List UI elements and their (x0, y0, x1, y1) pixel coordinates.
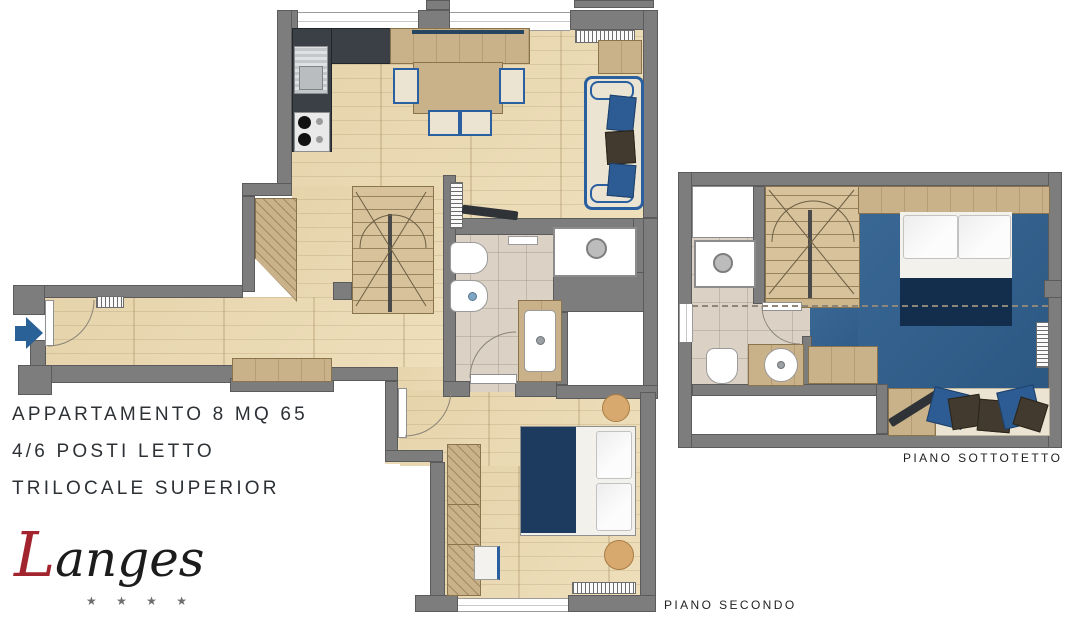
burner (316, 118, 323, 125)
hotel-stars: ★ ★ ★ ★ (86, 594, 195, 608)
wall-segment (876, 384, 888, 434)
wall-segment (385, 450, 443, 462)
chest (808, 346, 878, 384)
attic-void (692, 186, 756, 238)
radiator (572, 582, 636, 594)
sofa-pillow (606, 95, 637, 133)
wall-segment (643, 218, 658, 392)
entry-door-leaf (45, 300, 54, 346)
wardrobe-divider (447, 504, 479, 505)
radiator (1036, 322, 1049, 368)
chair (428, 110, 460, 136)
bed-pillow (903, 215, 958, 259)
staircase (765, 186, 860, 300)
staircase (352, 186, 434, 314)
floorplan-canvas: APPARTAMENTO 8 MQ 65 4/6 POSTI LETTO TRI… (0, 0, 1070, 629)
entrance-arrow-icon (26, 317, 43, 349)
label-piano-secondo: PIANO SECONDO (664, 598, 797, 612)
wall-segment (574, 0, 654, 8)
hotel-logo: Langes (14, 524, 204, 586)
bathroom-door-leaf (470, 374, 517, 384)
wardrobe-divider (447, 544, 479, 545)
window-bench-cushion (412, 30, 524, 34)
sofa-pillow (607, 163, 637, 198)
chair (460, 110, 492, 136)
toilet (450, 242, 488, 274)
console (232, 358, 332, 382)
burner (298, 116, 311, 129)
apartment-type: TRILOCALE SUPERIOR (12, 478, 280, 500)
attic-void (692, 396, 876, 434)
stool (604, 540, 634, 570)
faucet (777, 361, 785, 369)
corner-wardrobe (255, 198, 297, 302)
desk-chair (474, 546, 500, 580)
column (333, 282, 352, 300)
window (458, 598, 568, 612)
bidet-drain (468, 292, 477, 301)
wall-segment (242, 196, 255, 292)
logo-rest: anges (55, 530, 204, 588)
wall-segment (385, 381, 398, 453)
bed-pillow (958, 215, 1011, 259)
burner (298, 133, 311, 146)
wall-segment (678, 434, 1062, 448)
window (679, 304, 693, 342)
bench (598, 40, 642, 74)
wall-segment (678, 172, 1062, 186)
apartment-title: APPARTAMENTO 8 MQ 65 (12, 404, 308, 426)
entrance-arrow-icon (15, 326, 26, 341)
wall-segment (13, 285, 45, 315)
wall-segment (426, 0, 450, 10)
stair-rail (808, 210, 812, 298)
dining-table (413, 62, 503, 114)
wall-segment (277, 10, 292, 196)
stair-rail (388, 214, 392, 312)
radiator (96, 296, 124, 308)
bed-blanket (900, 278, 1012, 326)
wall-notch (1044, 280, 1062, 298)
bed-pillow (596, 431, 632, 479)
chair (393, 68, 419, 104)
wall-segment (640, 392, 656, 604)
wall-segment (568, 595, 656, 612)
wall-segment (418, 10, 450, 30)
wall-segment (331, 367, 398, 381)
sink-basin (299, 66, 323, 90)
wall-segment (18, 365, 52, 395)
bed-blanket (521, 427, 576, 533)
shower-head (586, 238, 607, 259)
faucet (536, 336, 545, 345)
burner (316, 136, 323, 143)
chair (499, 68, 525, 104)
headboard (858, 186, 1050, 214)
wall-segment (13, 285, 243, 298)
wall-segment (643, 10, 658, 218)
stool (602, 394, 630, 422)
bed-pillow (596, 483, 632, 531)
bedroom-door-leaf (398, 388, 407, 438)
wall-segment (430, 462, 445, 602)
wall-segment (1048, 172, 1062, 448)
apartment-beds: 4/6 POSTI LETTO (12, 441, 215, 463)
height-line (692, 305, 1048, 307)
wall-segment (242, 183, 292, 196)
radiator (450, 182, 463, 229)
label-piano-sottotetto: PIANO SOTTOTETTO (903, 451, 1062, 465)
toilet (706, 348, 738, 384)
logo-initial: L (14, 518, 55, 591)
towel-rail (508, 236, 538, 245)
wall-segment (443, 381, 470, 397)
sofa-pillow (605, 130, 636, 165)
shower-head (713, 253, 733, 273)
wall-segment (415, 595, 458, 612)
wall-segment (515, 381, 558, 397)
